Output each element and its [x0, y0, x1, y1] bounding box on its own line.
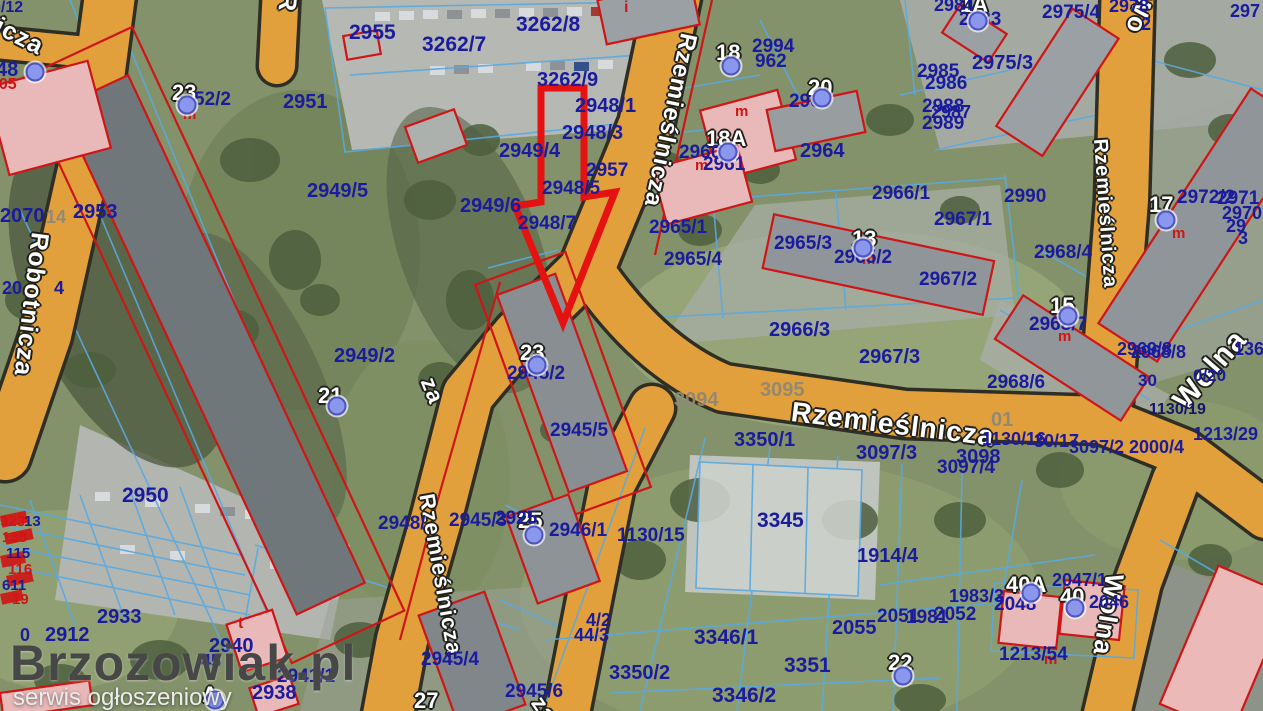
parcel-label: 2046	[1089, 593, 1129, 611]
parcel-label: 962	[755, 52, 787, 71]
parcel-label: 2966/3	[769, 320, 830, 340]
parcel-label: 30	[1138, 372, 1157, 389]
parcel-label: 297	[1230, 2, 1260, 20]
parcel-label: 2948/3	[562, 123, 623, 143]
parcel-label: 2055	[832, 618, 877, 638]
parcel-label: 1130/15	[617, 526, 685, 545]
street-label: Rzemieślnicza	[1090, 138, 1120, 289]
red-label: 116	[8, 562, 32, 577]
parcel-label: 3262/8	[516, 14, 580, 35]
building-point-marker	[719, 143, 738, 162]
building-point-marker	[525, 526, 544, 545]
parcel-label: 2948/7	[518, 214, 576, 233]
parcel-label: 1130/19	[1149, 402, 1206, 418]
building-point-marker	[26, 63, 45, 82]
road-label: 3094	[674, 390, 719, 410]
map-screenshot: iczaRRobotniczaRzemieślniczazaRzemieślni…	[0, 0, 1263, 711]
parcel-label: 2945/4	[421, 650, 479, 669]
building-point-marker	[969, 12, 988, 31]
parcel-label: 3262/9	[537, 70, 598, 90]
parcel-label: 3350/1	[734, 430, 795, 450]
parcel-label: 2948/5	[542, 179, 600, 198]
street-label: R	[273, 0, 300, 13]
parcel-label: 2949/4	[499, 141, 560, 161]
parcel-label: 611	[2, 578, 26, 593]
road-label: 14	[46, 208, 66, 226]
building-point-marker	[1059, 307, 1078, 326]
building-point-marker	[1066, 599, 1085, 618]
parcel-label: 2945/5	[550, 421, 608, 440]
parcel-label: 2978	[1109, 0, 1149, 15]
parcel-label: 2989	[922, 114, 964, 133]
parcel-label: 2948/	[378, 514, 426, 533]
parcel-label: 3262/7	[422, 34, 486, 55]
parcel-label: 2949/6	[460, 196, 521, 216]
parcel-label: 48	[0, 60, 18, 80]
watermark-tagline: serwis ogłoszeniowy	[13, 684, 232, 711]
street-label: Rzemieślnicza	[640, 31, 700, 209]
parcel-label: 3097/4	[937, 458, 995, 477]
building-point-marker	[722, 57, 741, 76]
parcel-label: 2047/1	[1052, 571, 1107, 589]
parcel-label: 2946/1	[549, 521, 607, 540]
parcel-label: 2968/8	[1131, 343, 1186, 361]
street-label: icza	[0, 14, 48, 60]
building-point-marker	[528, 356, 547, 375]
road-label: 01	[991, 410, 1013, 430]
parcel-label: 3345	[757, 510, 804, 531]
parcel-label: 2949/2	[334, 346, 395, 366]
street-label: za	[417, 374, 448, 407]
red-label: i	[624, 0, 628, 16]
building-point-marker	[813, 89, 832, 108]
red-label: t	[238, 616, 243, 632]
parcel-label: 1213/29	[1193, 425, 1258, 443]
parcel-label: 2945/6	[505, 682, 563, 701]
building-point-marker	[1157, 211, 1176, 230]
parcel-label: 2955	[349, 22, 396, 43]
red-label: m	[1172, 226, 1185, 241]
building-point-marker	[1022, 584, 1041, 603]
parcel-label: 2052	[934, 605, 976, 624]
building-number: 27	[414, 690, 438, 711]
parcel-label: 3346/1	[694, 627, 758, 648]
parcel-label: 52/2	[194, 90, 231, 109]
red-label: 19	[12, 592, 29, 607]
parcel-label: 2968/4	[1034, 243, 1092, 262]
parcel-label: 13	[24, 514, 41, 529]
parcel-label: 2967/3	[859, 347, 920, 367]
parcel-label: 2990	[1004, 187, 1046, 206]
building-point-marker	[328, 397, 347, 416]
parcel-label: 2967/1	[934, 210, 992, 229]
building-point-marker	[178, 96, 197, 115]
parcel-label: 3350/2	[609, 663, 670, 683]
parcel-label: 20	[2, 279, 22, 297]
parcel-label: 2967/2	[919, 270, 977, 289]
parcel-label: 3346/2	[712, 685, 776, 706]
parcel-label: 0/12	[0, 0, 23, 16]
parcel-label: 136	[1234, 340, 1263, 358]
parcel-label: 2965/4	[664, 250, 722, 269]
parcel-label: 1213/54	[999, 645, 1068, 664]
parcel-label: 115	[6, 546, 30, 561]
parcel-label: 3097/3	[856, 443, 917, 463]
parcel-label: 2948/1	[575, 96, 636, 116]
parcel-label: 2000/4	[1129, 438, 1184, 456]
parcel-label: 2950	[122, 485, 169, 506]
parcel-label: 2	[1141, 15, 1151, 33]
parcel-label: 3097/2	[1069, 438, 1124, 456]
parcel-label: 2966/1	[872, 184, 930, 203]
parcel-label: 2968/6	[987, 373, 1045, 392]
parcel-label: 2949/5	[307, 181, 368, 201]
parcel-label: 2975/3	[972, 53, 1033, 73]
parcel-label: 2953	[73, 202, 118, 222]
parcel-label: 3	[1238, 229, 1248, 247]
parcel-label: 2951	[283, 92, 328, 112]
parcel-label: 2965/1	[649, 218, 707, 237]
parcel-label: 2933	[97, 607, 142, 627]
parcel-label: 2070	[0, 206, 45, 226]
street-label: Robotnicza	[10, 231, 52, 378]
building-point-marker	[894, 667, 913, 686]
red-label: 138	[2, 530, 27, 545]
parcel-label: 2975/4	[1042, 3, 1100, 22]
parcel-label: 1914/4	[857, 546, 918, 566]
red-label: 923	[0, 514, 25, 529]
parcel-label: 3351	[784, 655, 831, 676]
map-labels-layer: iczaRRobotniczaRzemieślniczazaRzemieślni…	[0, 0, 1263, 711]
parcel-label: 2986	[925, 74, 967, 93]
red-label: m	[735, 104, 748, 119]
parcel-label: 0/20	[1193, 367, 1226, 384]
parcel-label: 2965/3	[774, 234, 832, 253]
road-label: 3095	[760, 380, 805, 400]
parcel-label: 2964	[800, 141, 845, 161]
building-point-marker	[854, 239, 873, 258]
parcel-label: 4	[54, 279, 64, 297]
parcel-label: 44/3	[574, 626, 609, 644]
